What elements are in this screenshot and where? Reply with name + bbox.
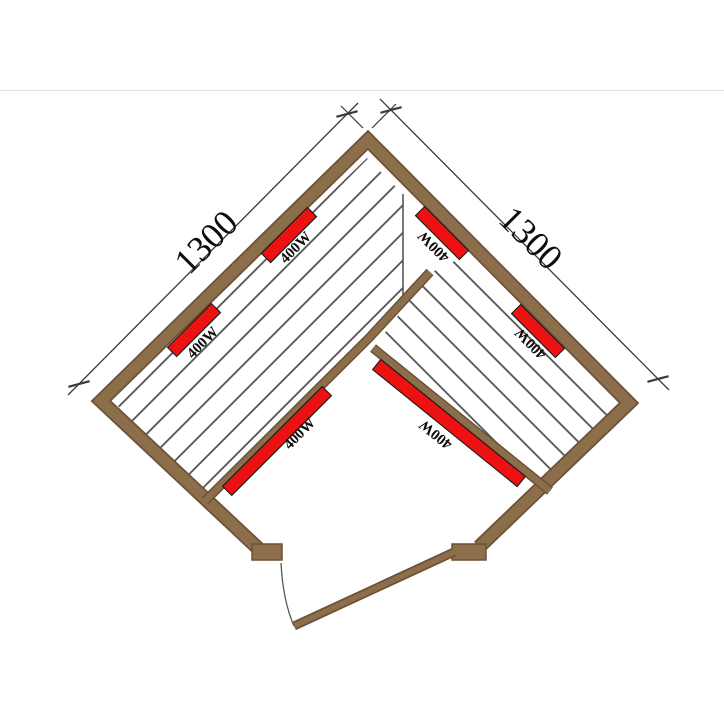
dimension-label-right: 1300 <box>491 198 570 277</box>
door-jamb-left <box>252 544 282 560</box>
sauna-floorplan-drawing: 1300 1300 400W 400W 400W 400W 400W 400W <box>0 0 724 724</box>
door-swing-arc <box>281 563 294 626</box>
dimension-tick <box>380 107 401 113</box>
dimension-tick <box>647 376 668 382</box>
dimension-tick <box>68 381 89 387</box>
door-jamb-right <box>452 544 486 560</box>
sauna-floorplan-page: 1300 1300 400W 400W 400W 400W 400W 400W <box>0 0 724 724</box>
door-leaf <box>294 552 454 626</box>
extension-line-apex-right <box>372 104 396 128</box>
